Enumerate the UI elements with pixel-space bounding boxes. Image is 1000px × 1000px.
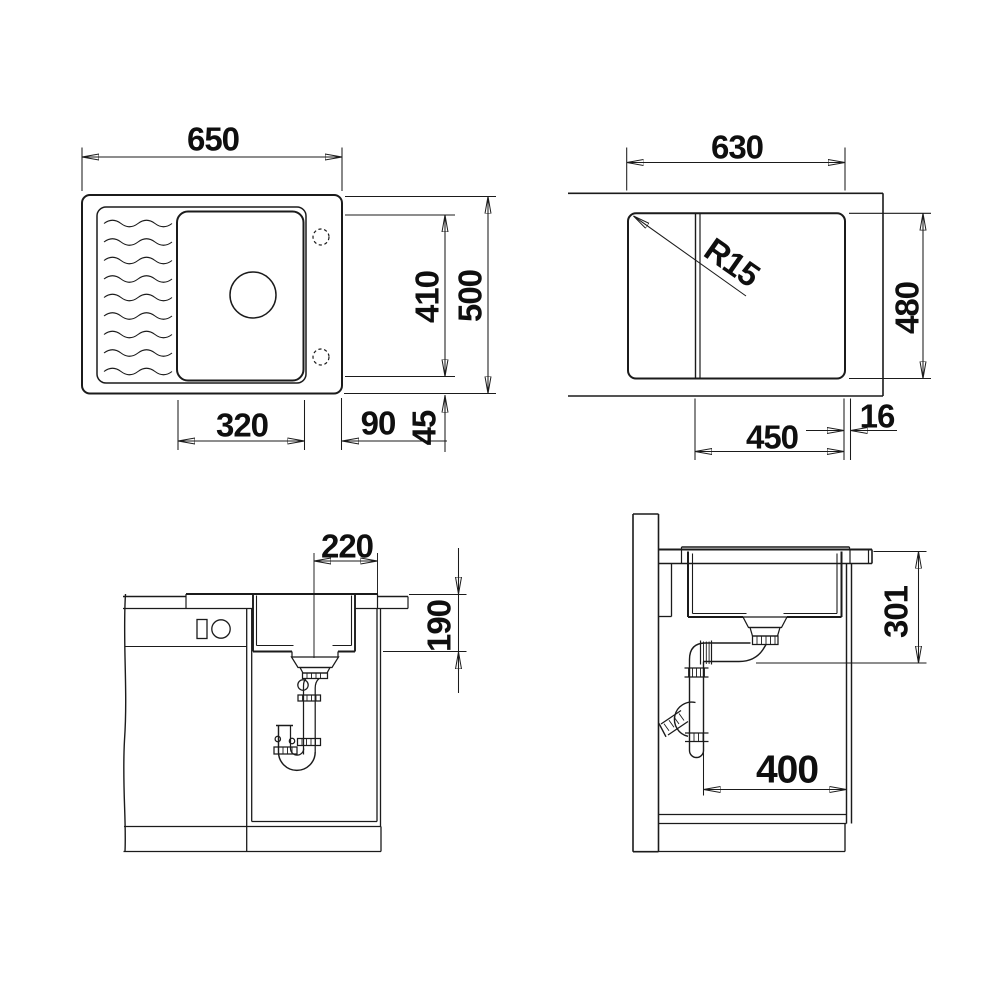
drainboard-waves xyxy=(104,220,172,375)
control-switch xyxy=(197,620,207,639)
dim-480-cutout-depth: 480 xyxy=(891,282,924,334)
tap-hole-bottom xyxy=(313,349,329,365)
view-front-section xyxy=(123,548,467,852)
drain-hole xyxy=(230,272,276,318)
cutout-rect xyxy=(628,213,845,378)
basin-front xyxy=(253,594,355,652)
dim-400-cabinet-clearance: 400 xyxy=(756,751,818,790)
siphon-side xyxy=(659,617,787,758)
tap-hole-top xyxy=(313,229,329,245)
dim-90-drainer-edge: 90 xyxy=(361,407,396,440)
siphon-front xyxy=(274,652,339,771)
dim-190-basin-depth: 190 xyxy=(423,600,456,652)
worktop-front xyxy=(123,594,408,852)
basin-side xyxy=(688,552,842,618)
control-knob xyxy=(212,620,230,638)
wall-hatch xyxy=(633,514,659,852)
worktop-side xyxy=(659,547,873,617)
dim-301-install-depth: 301 xyxy=(880,586,913,638)
technical-drawing-canvas: 650 410 500 320 90 45 630 R15 480 450 16… xyxy=(0,0,1000,1000)
dim-630-cutout-width: 630 xyxy=(711,131,763,164)
dim-320-basin-width: 320 xyxy=(216,409,268,442)
dim-410-basin-length: 410 xyxy=(411,271,444,323)
dim-500-overall-depth: 500 xyxy=(454,270,487,322)
drawing-svg xyxy=(0,0,1000,1000)
dim-45-rim-edge: 45 xyxy=(408,411,441,446)
dim-16-edge-offset: 16 xyxy=(860,400,895,433)
dim-450-inner-width: 450 xyxy=(746,421,798,454)
break-line xyxy=(124,594,126,852)
worktop-outline xyxy=(568,193,883,396)
dim-650-overall-width: 650 xyxy=(187,123,239,156)
dim-220-drain-offset: 220 xyxy=(321,530,373,563)
sink-outline xyxy=(82,195,342,394)
view-side-section xyxy=(633,514,927,852)
